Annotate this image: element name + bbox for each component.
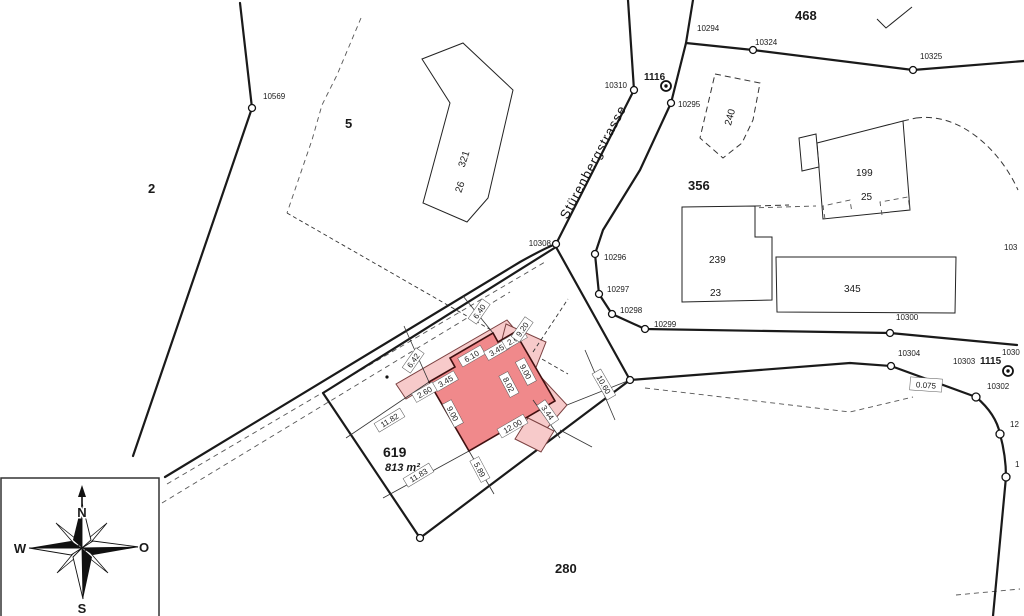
point-label-10569: 10569 (263, 92, 286, 101)
building239-dashed-stub (755, 205, 789, 206)
parcel-label-2: 2 (148, 181, 155, 196)
point-parcel619-south (417, 535, 424, 542)
compass-label-w: W (14, 541, 27, 556)
point-label-10325: 10325 (920, 52, 943, 61)
measure-line-1182 (346, 382, 429, 438)
point-label-1-clipped: 1 (1015, 460, 1020, 469)
parcel-label-619: 619 (383, 444, 407, 460)
compass-rose: N S W O (1, 478, 159, 616)
compass-label-s: S (78, 601, 87, 616)
point-10295 (668, 100, 675, 107)
house-number-25: 25 (861, 192, 873, 203)
compass-label-o: O (139, 540, 149, 555)
point-label-10298: 10298 (620, 306, 643, 315)
building-345-outline (776, 257, 956, 313)
annex-tie-line-1 (560, 430, 592, 447)
point-label-1115: 1115 (980, 356, 1002, 367)
point-10304 (888, 363, 895, 370)
point-labels: 10569 10294 10324 10325 10310 1116 10295… (263, 24, 1020, 469)
point-label-10303: 10303 (953, 357, 976, 366)
parcel-label-280: 280 (555, 561, 577, 576)
point-label-10295: 10295 (678, 100, 701, 109)
parcel-label-240: 240 (723, 107, 738, 126)
building-label-199: 199 (856, 168, 873, 179)
parcel-area-619: 813 m² (385, 462, 420, 474)
house-number-23: 23 (710, 288, 722, 299)
point-label-10300: 10300 (896, 313, 919, 322)
west-boundary-line (133, 3, 252, 456)
point-10296 (592, 251, 599, 258)
point-10310 (631, 87, 638, 94)
point-10302 (972, 393, 980, 401)
point-label-10297: 10297 (607, 285, 630, 294)
point-label-1116: 1116 (644, 72, 666, 83)
parcel-label-468: 468 (795, 8, 817, 23)
dashed-arc-right (916, 117, 1018, 190)
point-label-103-clipped: 103 (1004, 243, 1018, 252)
building-239-outline (682, 206, 772, 302)
point-10324 (750, 47, 757, 54)
point-10300 (887, 330, 894, 337)
parcel-label-356: 356 (688, 178, 710, 193)
sliver-area-label: 0.075 (916, 380, 937, 390)
point-parcel619-east (627, 377, 634, 384)
point-label-10310: 10310 (605, 81, 628, 90)
southeast-boundary-line (630, 363, 1006, 616)
point-label-12-clipped: 12 (1010, 420, 1019, 429)
area-sliver-0075: 0.075 (910, 377, 943, 392)
point-curve-1 (996, 430, 1004, 438)
point-label-1030-clipped: 1030 (1002, 348, 1020, 357)
building-321-outline (422, 43, 513, 222)
point-label-10294: 10294 (697, 24, 720, 33)
point-10325 (910, 67, 917, 74)
point-10299 (642, 326, 649, 333)
point-label-10308: 10308 (529, 239, 552, 248)
point-10297 (596, 291, 603, 298)
hydrant-symbol-1115 (1003, 366, 1013, 376)
dashed-line-bottom-right (956, 589, 1020, 595)
point-curve-2 (1002, 473, 1010, 481)
point-label-10299: 10299 (654, 320, 677, 329)
buildings-existing (422, 7, 956, 313)
compass-label-n: N (77, 505, 86, 520)
small-survey-dot (385, 375, 388, 378)
building-label-239: 239 (709, 255, 726, 266)
building-label-345: 345 (844, 284, 861, 295)
point-label-10296: 10296 (604, 253, 627, 262)
measure-line-920 (533, 299, 568, 352)
point-10298 (609, 311, 616, 318)
building199-dashed-stub (903, 118, 916, 121)
point-10569 (249, 105, 256, 112)
cadastral-map: 0.075 11.82 11.83 5.89 9.00 12.00 2.60 3… (0, 0, 1024, 616)
check-mark-lines (877, 7, 912, 28)
parcel-label-5: 5 (345, 116, 352, 131)
north-boundary-line (686, 43, 1024, 70)
building-199-annex-outline (799, 134, 819, 171)
point-label-10304: 10304 (898, 349, 921, 358)
dashed-line-southeast (645, 388, 913, 412)
point-10308 (553, 241, 560, 248)
point-label-10324: 10324 (755, 38, 778, 47)
point-label-10302: 10302 (987, 382, 1010, 391)
map-canvas: 0.075 11.82 11.83 5.89 9.00 12.00 2.60 3… (0, 0, 1024, 616)
